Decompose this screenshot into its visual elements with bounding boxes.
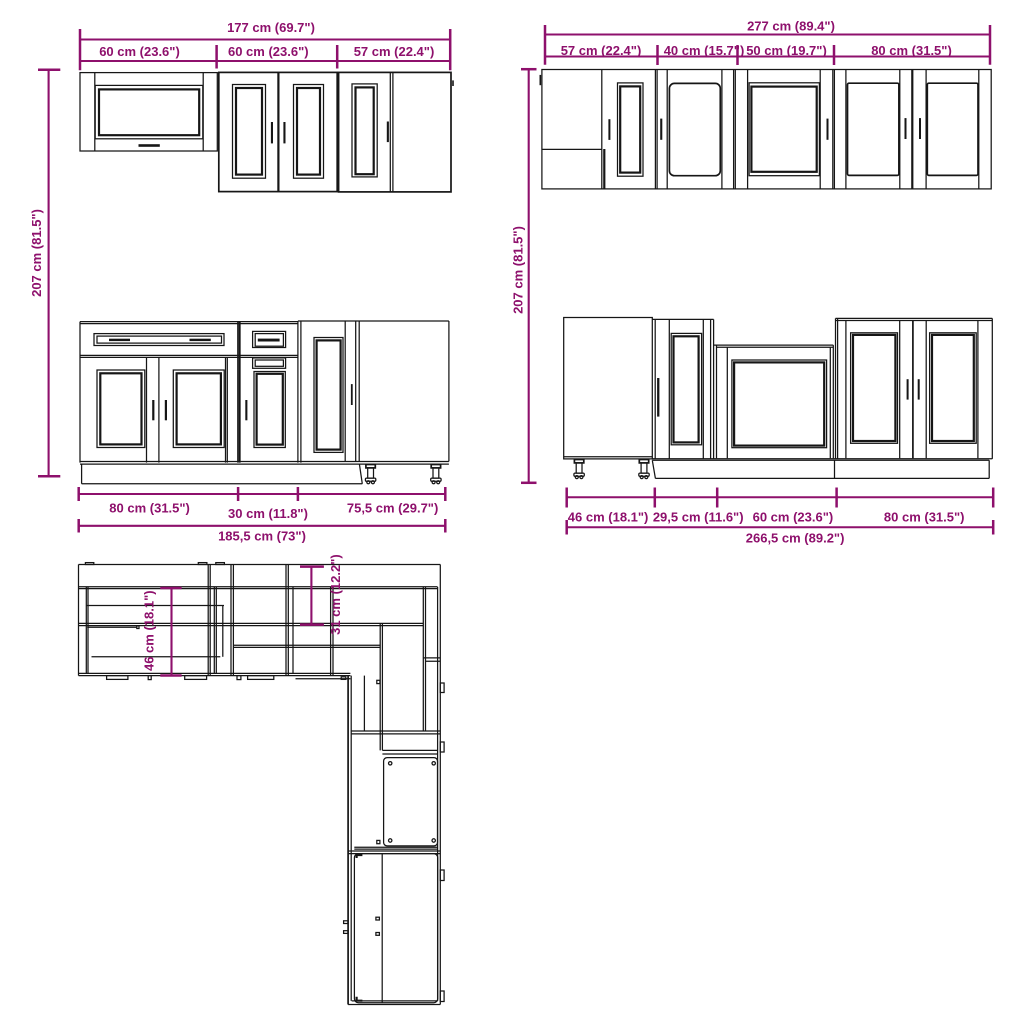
svg-text:60 cm (23.6"): 60 cm (23.6") (228, 44, 309, 59)
svg-text:31 cm (12.2"): 31 cm (12.2") (328, 554, 343, 635)
svg-text:60 cm (23.6"): 60 cm (23.6") (753, 510, 834, 525)
svg-text:57 cm (22.4"): 57 cm (22.4") (561, 43, 642, 58)
svg-text:30 cm (11.8"): 30 cm (11.8") (228, 506, 308, 521)
svg-text:60 cm (23.6"): 60 cm (23.6") (99, 44, 180, 59)
svg-text:207 cm (81.5"): 207 cm (81.5") (29, 209, 44, 297)
svg-text:29,5 cm (11.6"): 29,5 cm (11.6") (653, 510, 744, 525)
svg-text:277 cm (89.4"): 277 cm (89.4") (747, 18, 835, 33)
svg-text:207 cm (81.5"): 207 cm (81.5") (510, 226, 525, 314)
svg-text:266,5 cm (89.2"): 266,5 cm (89.2") (746, 531, 845, 546)
svg-text:75,5 cm (29.7"): 75,5 cm (29.7") (347, 501, 438, 516)
svg-text:50 cm (19.7"): 50 cm (19.7") (746, 43, 827, 58)
svg-text:185,5 cm (73"): 185,5 cm (73") (218, 528, 306, 543)
svg-text:80 cm (31.5"): 80 cm (31.5") (871, 43, 952, 58)
svg-text:80 cm (31.5"): 80 cm (31.5") (884, 510, 965, 525)
svg-text:46 cm (18.1"): 46 cm (18.1") (142, 590, 157, 671)
svg-text:57 cm (22.4"): 57 cm (22.4") (354, 44, 435, 59)
svg-text:80 cm (31.5"): 80 cm (31.5") (109, 501, 190, 516)
svg-text:177 cm (69.7"): 177 cm (69.7") (227, 20, 315, 35)
svg-text:40 cm (15.7"): 40 cm (15.7") (664, 43, 745, 58)
svg-text:46 cm (18.1"): 46 cm (18.1") (568, 510, 649, 525)
